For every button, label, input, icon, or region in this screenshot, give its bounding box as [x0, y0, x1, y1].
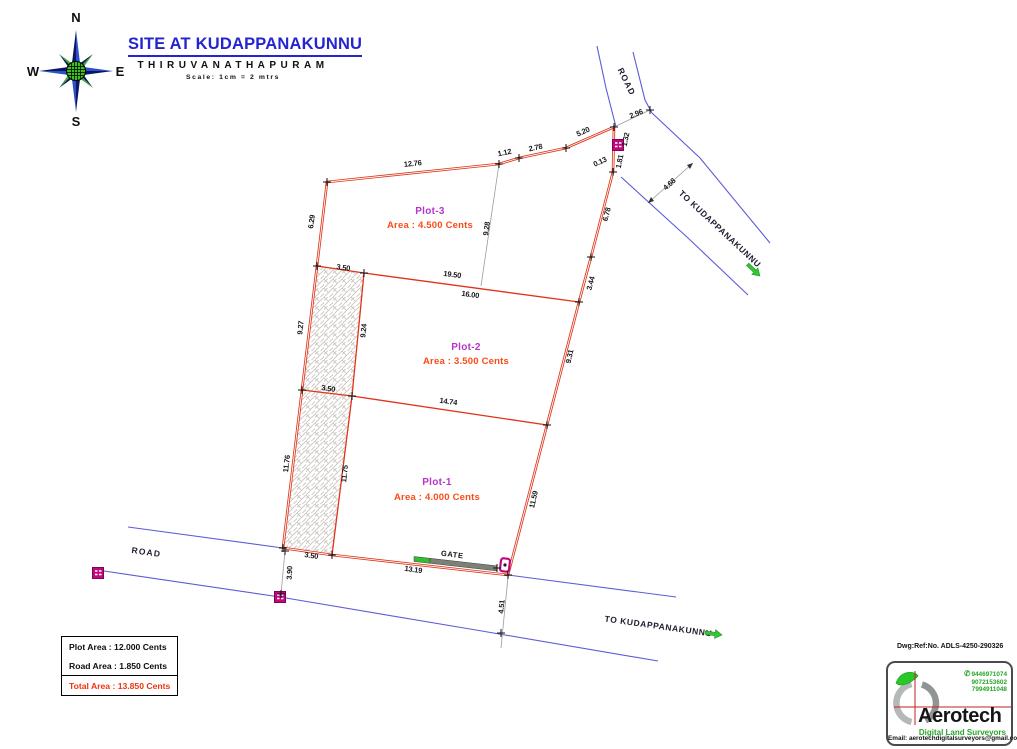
- area-summary-table: Plot Area : 12.000 Cents Road Area : 1.8…: [61, 636, 178, 696]
- brand-email: Email: aerotechdigitalsurveyors@gmail.co…: [888, 735, 1011, 742]
- dim-0-13: 0.13: [592, 155, 608, 169]
- top-road-left-edge: [597, 46, 616, 127]
- bottom-road-upper-edge-right: [508, 575, 676, 597]
- bottom-road-lower-edge: [104, 571, 658, 661]
- dim-6-29: 6.29: [306, 214, 317, 229]
- compass-rose: N S E W: [27, 10, 125, 129]
- dim-14-74: 14.74: [439, 396, 459, 408]
- site-title: SITE AT KUDAPPANAKUNNU: [128, 35, 362, 57]
- plot3-area: Area : 4.500 Cents: [387, 220, 473, 231]
- phone-icon: ✆: [964, 669, 970, 678]
- dim-5-20: 5.20: [575, 125, 591, 139]
- dim-2-78: 2.78: [528, 142, 543, 154]
- dim-1-81: 1.81: [614, 154, 626, 169]
- dim-3-50-top: 3.50: [336, 262, 351, 273]
- plot2-area: Area : 3.500 Cents: [423, 356, 509, 367]
- phone-1: 9446971074: [971, 671, 1007, 678]
- city-subtitle: THIRUVANATHAPURAM: [128, 60, 338, 71]
- compass-s: S: [72, 114, 81, 129]
- dim-19-50: 19.50: [443, 269, 462, 280]
- compass-n: N: [71, 10, 80, 25]
- compass-w: W: [27, 64, 40, 79]
- dim-16-00: 16.00: [461, 289, 480, 300]
- dim-4-51: 4.51: [496, 599, 506, 614]
- to-kudappanakunnu-bottom: TO KUDAPPANAKUNNU: [604, 614, 713, 639]
- dim-9-28: 9.28: [481, 221, 492, 236]
- title-block: SITE AT KUDAPPANAKUNNU THIRUVANATHAPURAM…: [128, 35, 338, 81]
- phone-2: 9072153602: [964, 679, 1007, 687]
- road-area-row: Road Area : 1.850 Cents: [62, 656, 177, 675]
- dim-1-12: 1.12: [497, 147, 512, 159]
- dim-1-32: 1.32: [620, 132, 632, 147]
- electric-post-road-left: [93, 568, 104, 579]
- plot3-name: Plot-3: [415, 206, 445, 217]
- phone-numbers: ✆9446971074 9072153602 7994911048: [964, 670, 1007, 694]
- gate-label: GATE: [440, 549, 464, 561]
- road-label-top: ROAD: [616, 66, 638, 97]
- survey-sheet: GATE 12.76 1.12 2.78 5.20 2.96 1.32 1.81…: [0, 0, 1017, 749]
- total-area-row: Total Area : 13.850 Cents: [62, 675, 177, 695]
- dim-3-50-bot: 3.50: [304, 550, 319, 561]
- bottom-road-upper-edge-left: [128, 527, 283, 548]
- road-label-bottom: ROAD: [131, 545, 162, 559]
- plot1-name: Plot-1: [422, 477, 452, 488]
- to-kudappanakunnu-top: TO KUDAPPANAKUNNU: [677, 188, 763, 269]
- dim-11-75: 11.75: [339, 465, 350, 483]
- dim-9-31: 9.31: [564, 349, 576, 364]
- dim-12-76: 12.76: [403, 158, 422, 169]
- dim-9-24: 9.24: [358, 322, 369, 338]
- surveyor-logo-box: ✆9446971074 9072153602 7994911048 Aerote…: [886, 661, 1013, 746]
- arrowhead-4-68-ne: [687, 163, 693, 169]
- dim-3-90: 3.90: [285, 566, 295, 580]
- dim-2-96: 2.96: [628, 107, 644, 121]
- road-strip-hatch: [283, 266, 364, 555]
- top-road-right-edge: [633, 52, 652, 113]
- brand-name: Aerotech: [918, 705, 1002, 728]
- electric-post-road-mid: [275, 592, 286, 603]
- plot2-name: Plot-2: [451, 342, 481, 353]
- compass-e: E: [116, 64, 125, 79]
- gate-post-symbol: [500, 558, 511, 572]
- dim-13-19: 13.19: [404, 564, 423, 575]
- gate-bar-green: [414, 557, 430, 564]
- dim-3-50-mid: 3.50: [321, 383, 336, 394]
- dim-11-76: 11.76: [281, 455, 292, 473]
- dim-9-27: 9.27: [295, 320, 305, 335]
- phone-3: 7994911048: [964, 686, 1007, 694]
- scale-note: Scale: 1cm = 2 mtrs: [128, 74, 338, 81]
- arrowhead-4-68-sw: [648, 197, 654, 203]
- plot1-area: Area : 4.000 Cents: [394, 492, 480, 503]
- plot-area-row: Plot Area : 12.000 Cents: [62, 637, 177, 656]
- dwg-ref-number: Dwg:Ref:No. ADLS-4250-290326: [897, 643, 1003, 650]
